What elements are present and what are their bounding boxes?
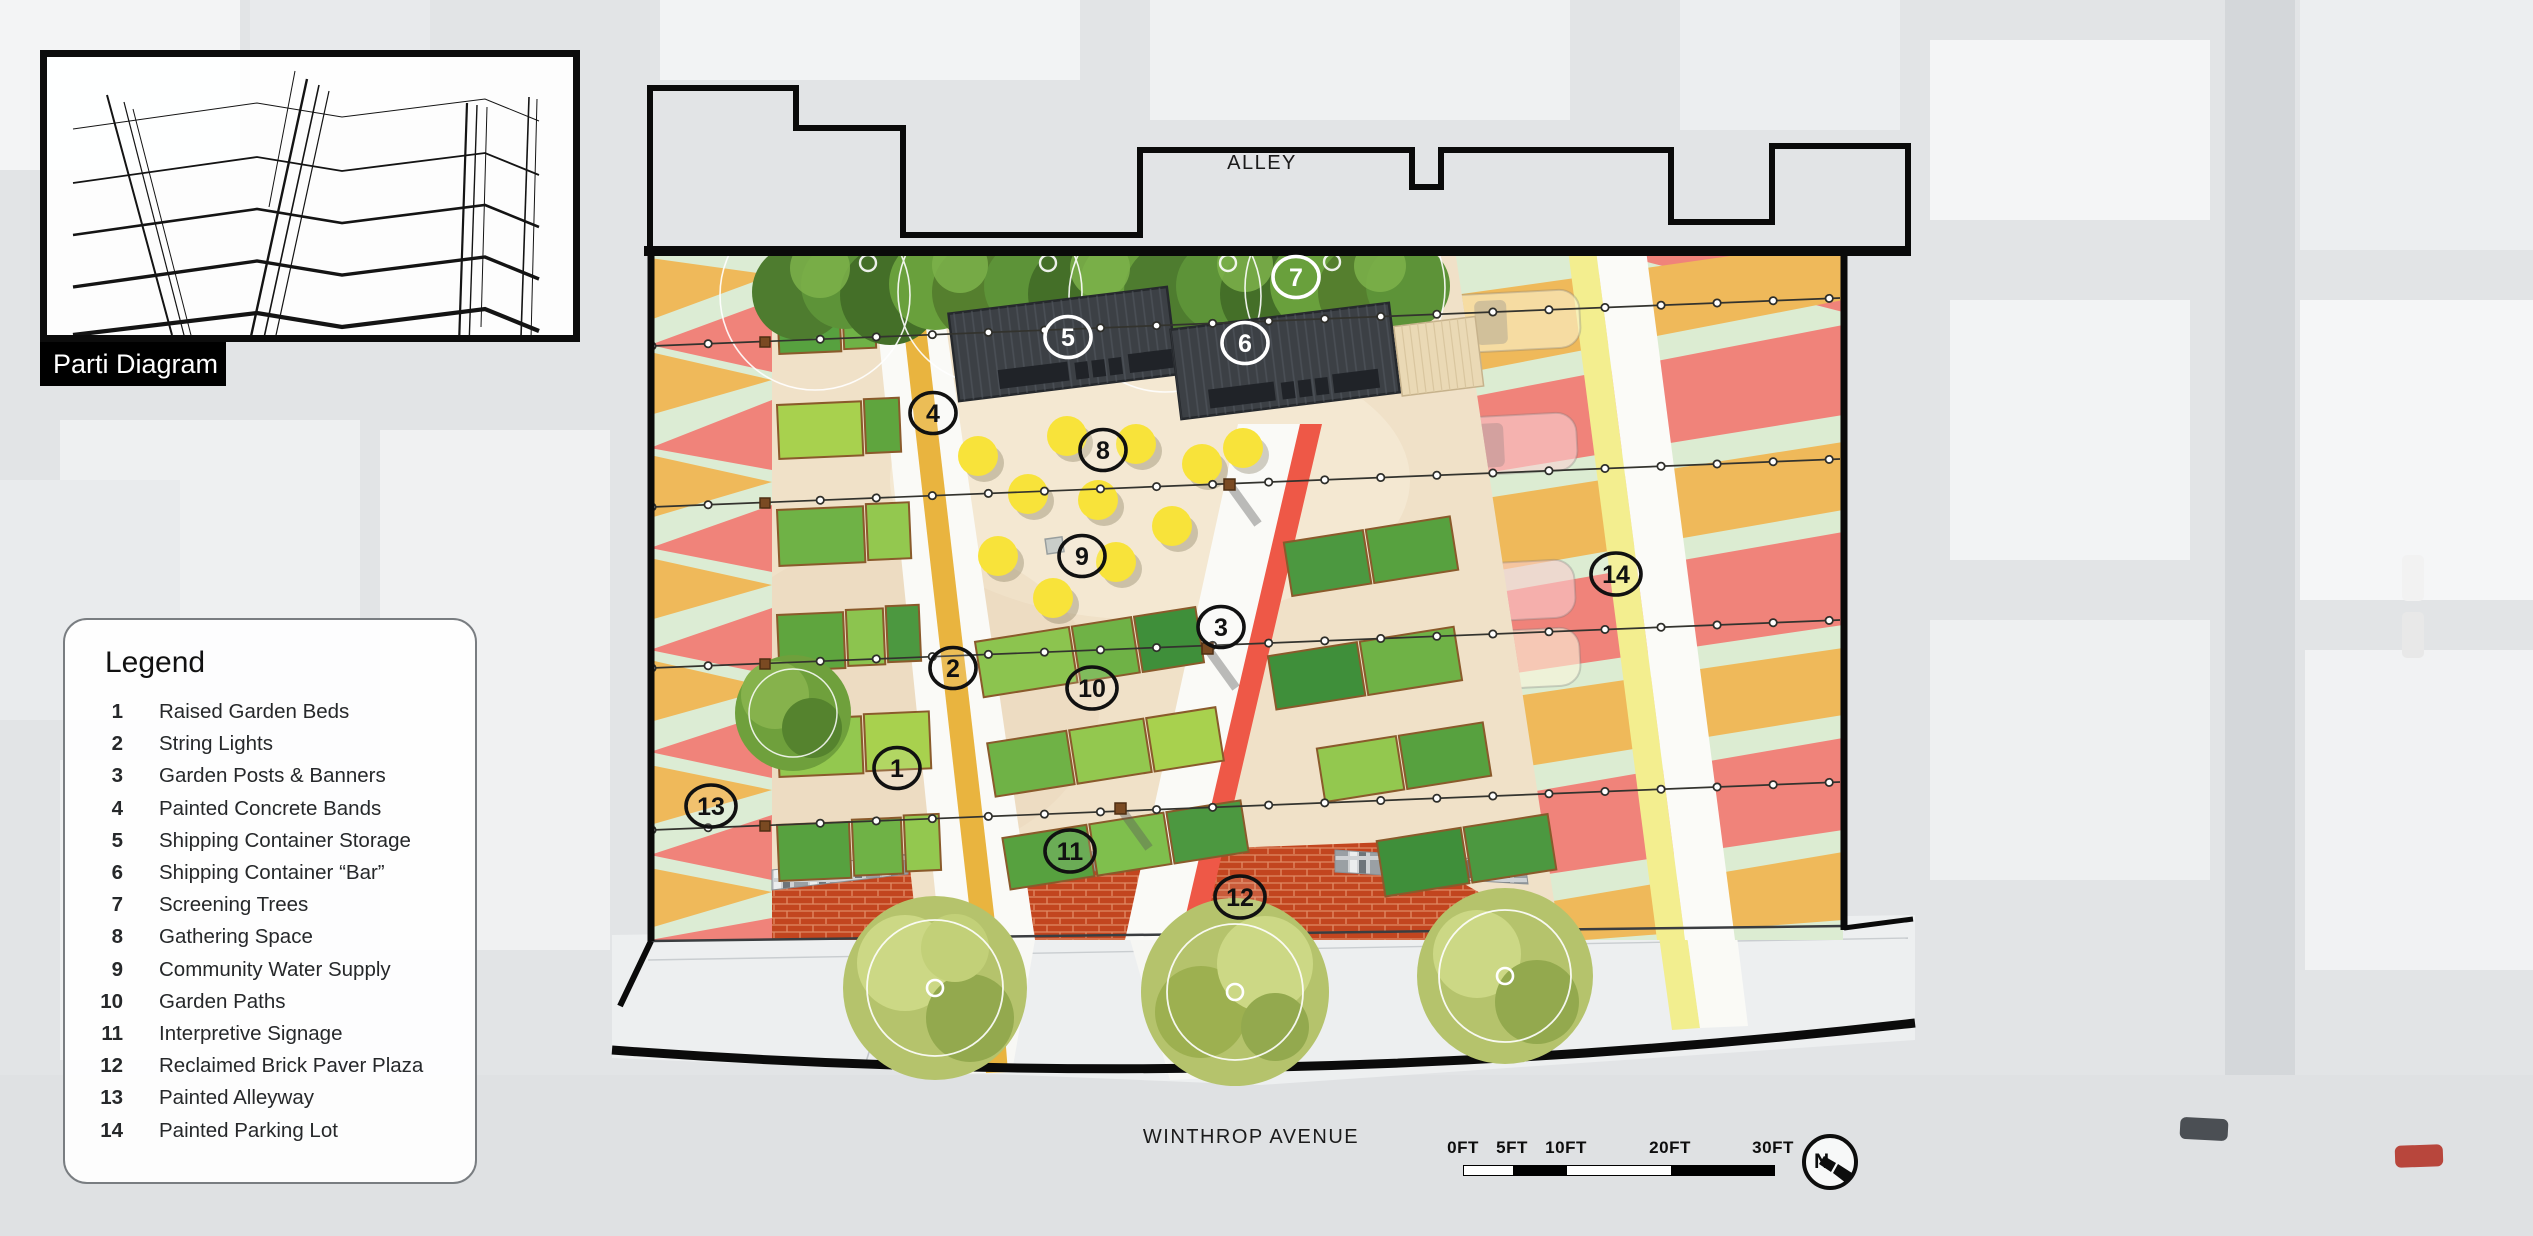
marker-10: 10 xyxy=(1067,667,1117,709)
svg-text:4: 4 xyxy=(926,400,940,428)
marker-9: 9 xyxy=(1059,536,1105,577)
marker-2: 2 xyxy=(930,648,976,689)
legend-item: 9Community Water Supply xyxy=(65,954,475,986)
container-deck xyxy=(1394,317,1484,396)
site-plan-board: 1 2 3 4 5 6 7 8 9 10 11 12 13 14 xyxy=(0,0,2533,1236)
legend-item: 1Raised Garden Beds xyxy=(65,696,475,728)
svg-text:10: 10 xyxy=(1078,675,1106,703)
legend-item: 2String Lights xyxy=(65,728,475,760)
svg-text:5: 5 xyxy=(1061,324,1075,352)
scale-tick: 0FT xyxy=(1447,1138,1479,1158)
marker-1: 1 xyxy=(874,748,920,789)
legend-title: Legend xyxy=(105,646,475,680)
legend-panel: Legend 1Raised Garden Beds 2String Light… xyxy=(63,618,477,1184)
scale-bar-segments xyxy=(1463,1165,1775,1176)
legend-item: 10Garden Paths xyxy=(65,986,475,1018)
svg-text:6: 6 xyxy=(1238,330,1252,358)
legend-item: 11Interpretive Signage xyxy=(65,1018,475,1050)
legend-item: 8Gathering Space xyxy=(65,921,475,953)
legend-item: 3Garden Posts & Banners xyxy=(65,760,475,792)
legend-item: 7Screening Trees xyxy=(65,889,475,921)
marker-14: 14 xyxy=(1591,553,1641,595)
legend-item: 6Shipping Container “Bar” xyxy=(65,857,475,889)
legend-item: 12Reclaimed Brick Paver Plaza xyxy=(65,1050,475,1082)
scale-tick: 20FT xyxy=(1649,1138,1691,1158)
winthrop-avenue-label: WINTHROP AVENUE xyxy=(1143,1126,1359,1149)
legend-item: 14Painted Parking Lot xyxy=(65,1114,475,1146)
legend-item: 4Painted Concrete Bands xyxy=(65,793,475,825)
painted-alleyway xyxy=(650,250,772,940)
svg-text:1: 1 xyxy=(890,755,904,783)
north-needle-icon xyxy=(1806,1138,1853,1185)
svg-text:11: 11 xyxy=(1057,838,1084,866)
marker-13: 13 xyxy=(686,785,736,827)
parti-diagram-sketch xyxy=(47,57,573,335)
alley-street-label: ALLEY xyxy=(1227,152,1297,175)
svg-text:3: 3 xyxy=(1214,614,1228,642)
marker-12: 12 xyxy=(1215,876,1265,918)
scale-tick: 5FT xyxy=(1496,1138,1528,1158)
marker-11: 11 xyxy=(1045,830,1095,872)
scale-tick: 30FT xyxy=(1752,1138,1794,1158)
marker-3: 3 xyxy=(1198,607,1244,648)
svg-text:7: 7 xyxy=(1289,264,1303,292)
svg-text:8: 8 xyxy=(1096,437,1110,465)
marker-8: 8 xyxy=(1080,430,1126,471)
street-trees xyxy=(843,888,1593,1086)
marker-4: 4 xyxy=(910,393,956,434)
scale-tick: 10FT xyxy=(1545,1138,1587,1158)
svg-text:9: 9 xyxy=(1075,543,1089,571)
parti-diagram-label: Parti Diagram xyxy=(40,342,226,386)
svg-text:14: 14 xyxy=(1602,561,1630,589)
scale-bar: 0FT 5FT 10FT 20FT 30FT xyxy=(1452,1138,1787,1182)
legend-item: 13Painted Alleyway xyxy=(65,1082,475,1114)
svg-text:12: 12 xyxy=(1226,884,1254,912)
north-arrow: N xyxy=(1802,1134,1858,1190)
legend-item: 5Shipping Container Storage xyxy=(65,825,475,857)
svg-text:13: 13 xyxy=(697,793,725,821)
svg-text:2: 2 xyxy=(946,655,960,683)
garden-tree xyxy=(735,655,851,771)
parti-diagram-panel xyxy=(40,50,580,342)
